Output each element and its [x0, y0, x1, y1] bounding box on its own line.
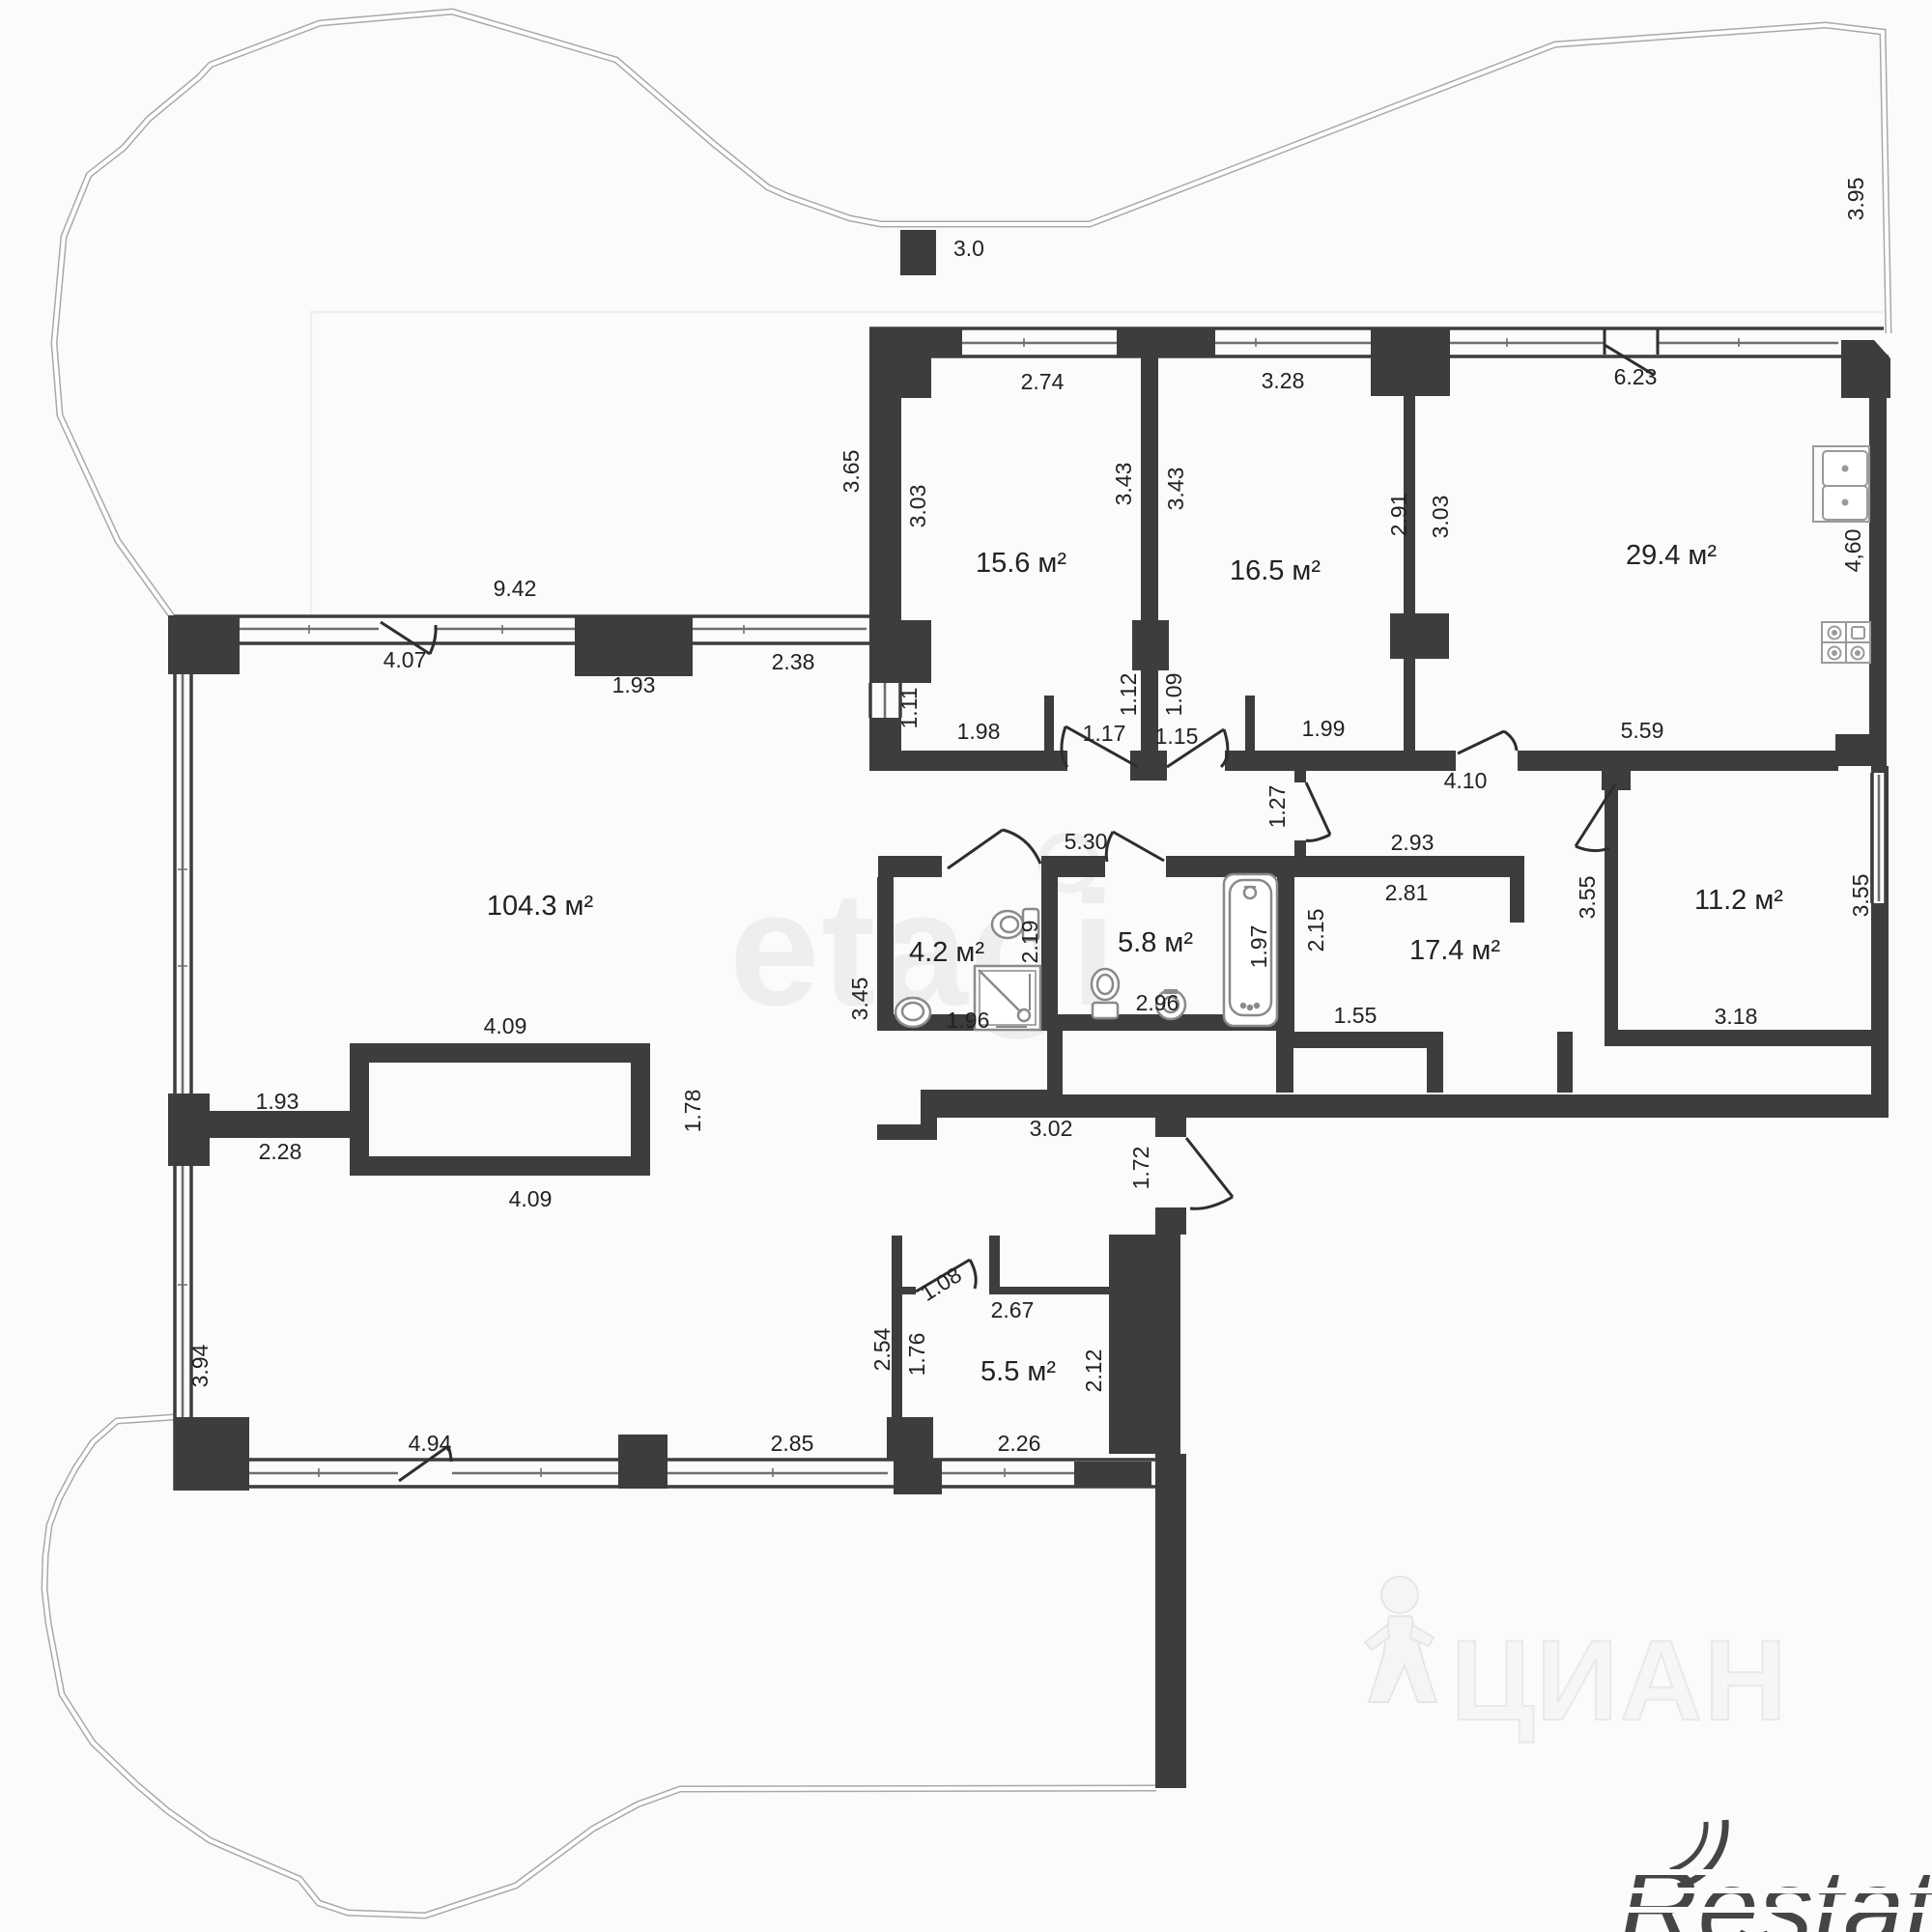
svg-text:3.02: 3.02	[1030, 1116, 1073, 1141]
svg-text:2.19: 2.19	[1017, 921, 1042, 964]
svg-text:4.09: 4.09	[484, 1013, 527, 1038]
svg-text:2.54: 2.54	[869, 1327, 895, 1371]
svg-text:4.2 м²: 4.2 м²	[909, 937, 984, 968]
svg-text:2.26: 2.26	[998, 1431, 1041, 1456]
svg-text:3.55: 3.55	[1848, 874, 1873, 918]
svg-text:3.43: 3.43	[1163, 468, 1188, 511]
svg-text:1.12: 1.12	[1116, 673, 1141, 717]
svg-text:1.17: 1.17	[1083, 721, 1126, 746]
svg-text:1.97: 1.97	[1246, 925, 1271, 969]
svg-text:17.4 м²: 17.4 м²	[1409, 935, 1500, 966]
svg-text:2.67: 2.67	[991, 1297, 1035, 1322]
svg-text:1.27: 1.27	[1264, 785, 1290, 829]
svg-text:3.03: 3.03	[905, 485, 930, 528]
svg-text:16.5 м²: 16.5 м²	[1230, 555, 1321, 586]
svg-text:2.81: 2.81	[1385, 880, 1429, 905]
svg-text:1.93: 1.93	[256, 1089, 299, 1114]
svg-text:5.59: 5.59	[1621, 718, 1664, 743]
svg-text:3.55: 3.55	[1575, 876, 1600, 920]
svg-text:3.18: 3.18	[1715, 1004, 1758, 1029]
svg-text:4,60: 4,60	[1840, 529, 1865, 573]
svg-text:3.43: 3.43	[1111, 463, 1136, 506]
svg-text:4.09: 4.09	[509, 1186, 553, 1211]
svg-text:5.8 м²: 5.8 м²	[1118, 927, 1193, 958]
svg-text:2.85: 2.85	[771, 1431, 814, 1456]
svg-text:1.11: 1.11	[896, 687, 922, 728]
svg-text:15.6 м²: 15.6 м²	[976, 548, 1066, 579]
svg-text:1.96: 1.96	[947, 1008, 990, 1033]
svg-text:2.28: 2.28	[259, 1139, 302, 1164]
svg-text:3.45: 3.45	[847, 978, 872, 1021]
svg-text:11.2 м²: 11.2 м²	[1694, 885, 1783, 916]
svg-text:1.99: 1.99	[1302, 716, 1346, 741]
svg-text:1.72: 1.72	[1128, 1147, 1153, 1190]
svg-text:3.95: 3.95	[1843, 178, 1868, 221]
svg-text:2.38: 2.38	[772, 649, 815, 674]
svg-text:3.0: 3.0	[953, 236, 984, 261]
svg-text:2.93: 2.93	[1391, 830, 1435, 855]
svg-text:29.4 м²: 29.4 м²	[1626, 540, 1717, 571]
svg-text:1.78: 1.78	[680, 1090, 705, 1133]
svg-text:1.93: 1.93	[612, 672, 656, 697]
svg-text:3.65: 3.65	[838, 450, 864, 494]
svg-text:1.55: 1.55	[1334, 1003, 1378, 1028]
svg-text:3.94: 3.94	[187, 1344, 213, 1387]
svg-text:2.96: 2.96	[1136, 990, 1179, 1015]
svg-text:2.91: 2.91	[1386, 494, 1411, 537]
svg-text:5.5 м²: 5.5 м²	[980, 1356, 1056, 1387]
svg-text:4.07: 4.07	[384, 647, 427, 672]
svg-text:2.12: 2.12	[1081, 1350, 1106, 1393]
svg-text:4.94: 4.94	[409, 1431, 452, 1456]
svg-text:2.15: 2.15	[1303, 909, 1328, 952]
svg-text:6.23: 6.23	[1614, 364, 1658, 389]
svg-text:9.42: 9.42	[494, 576, 537, 601]
svg-text:104.3 м²: 104.3 м²	[487, 891, 594, 922]
svg-text:1.76: 1.76	[904, 1333, 929, 1377]
svg-text:1.98: 1.98	[957, 719, 1001, 744]
svg-text:3.28: 3.28	[1262, 368, 1305, 393]
svg-text:4.10: 4.10	[1444, 768, 1488, 793]
svg-text:1.09: 1.09	[1161, 673, 1186, 717]
svg-text:2.74: 2.74	[1021, 369, 1065, 394]
svg-text:5.30: 5.30	[1065, 829, 1108, 854]
svg-text:ЦИАН: ЦИАН	[1451, 1617, 1788, 1745]
svg-text:3.03: 3.03	[1428, 496, 1453, 539]
svg-text:1.15: 1.15	[1155, 724, 1199, 749]
